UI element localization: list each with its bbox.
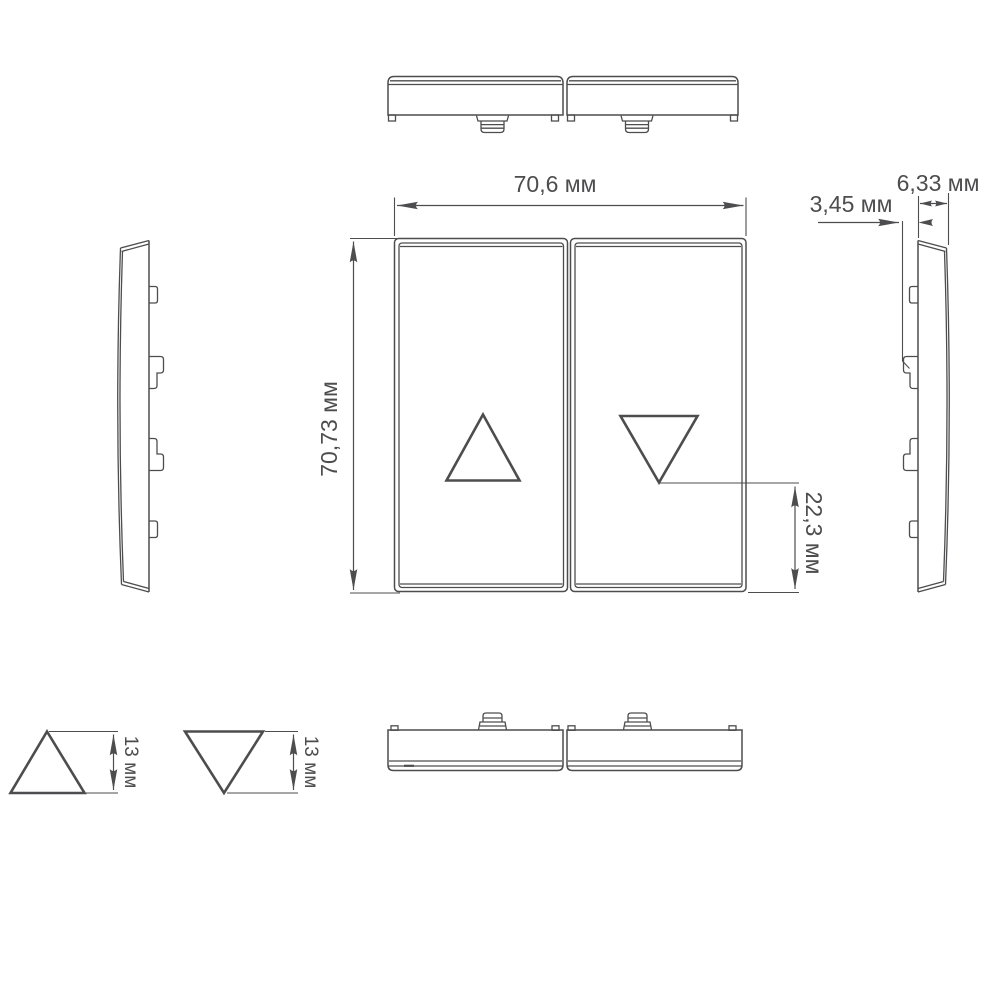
dim-down-arrow-offset-label: 22,3 мм xyxy=(801,492,827,575)
bottom-view-left-rocker xyxy=(388,730,563,771)
mount-foot xyxy=(731,115,738,121)
top-view-right-rocker xyxy=(567,77,738,116)
dim-profile-depth-label: 6,33 мм xyxy=(897,170,980,196)
technical-drawing-page: 70,6 мм 70,73 мм 22,3 мм 3,45 мм 6,33 мм xyxy=(0,0,1000,998)
dim-triangle-down-height-label: 13 мм xyxy=(300,736,321,789)
dim-clip-protrusion-label: 3,45 мм xyxy=(810,191,893,217)
front-view xyxy=(395,239,747,592)
top-view-left-rocker xyxy=(388,77,563,116)
top-view xyxy=(388,77,738,133)
dim-front-width-label: 70,6 мм xyxy=(514,171,597,197)
snap-clip-icon xyxy=(477,116,509,133)
dim-clip-protrusion: 3,45 мм xyxy=(810,191,933,369)
snap-clip-icon xyxy=(624,713,652,730)
arrow-down-icon xyxy=(621,416,698,483)
arrow-up-icon xyxy=(447,415,520,481)
bottom-view xyxy=(388,713,742,771)
mount-foot xyxy=(389,115,396,121)
dim-front-width: 70,6 мм xyxy=(395,171,747,236)
dimension-drawing: 70,6 мм 70,73 мм 22,3 мм 3,45 мм 6,33 мм xyxy=(0,0,1000,998)
snap-clip-icon xyxy=(479,713,507,730)
dim-profile-depth: 6,33 мм xyxy=(897,170,980,245)
arrowhead-left-icon xyxy=(919,219,934,226)
dim-front-height-label: 70,73 мм xyxy=(316,381,342,477)
mount-foot xyxy=(568,115,575,121)
arrow-down-icon xyxy=(185,732,263,794)
front-left-rocker xyxy=(395,239,568,592)
dim-down-arrow-offset: 22,3 мм xyxy=(660,483,827,593)
dim-triangle-up-height-label: 13 мм xyxy=(120,736,141,789)
dim-front-height: 70,73 мм xyxy=(316,239,400,594)
arrow-up-icon xyxy=(11,732,85,794)
triangle-down-detail: 13 мм xyxy=(185,732,321,794)
bottom-view-right-rocker xyxy=(567,730,742,771)
side-view-left xyxy=(118,241,164,593)
triangle-up-detail: 13 мм xyxy=(11,732,142,794)
mount-foot xyxy=(552,115,559,121)
snap-clip-icon xyxy=(621,116,653,133)
side-view-right xyxy=(904,241,950,593)
